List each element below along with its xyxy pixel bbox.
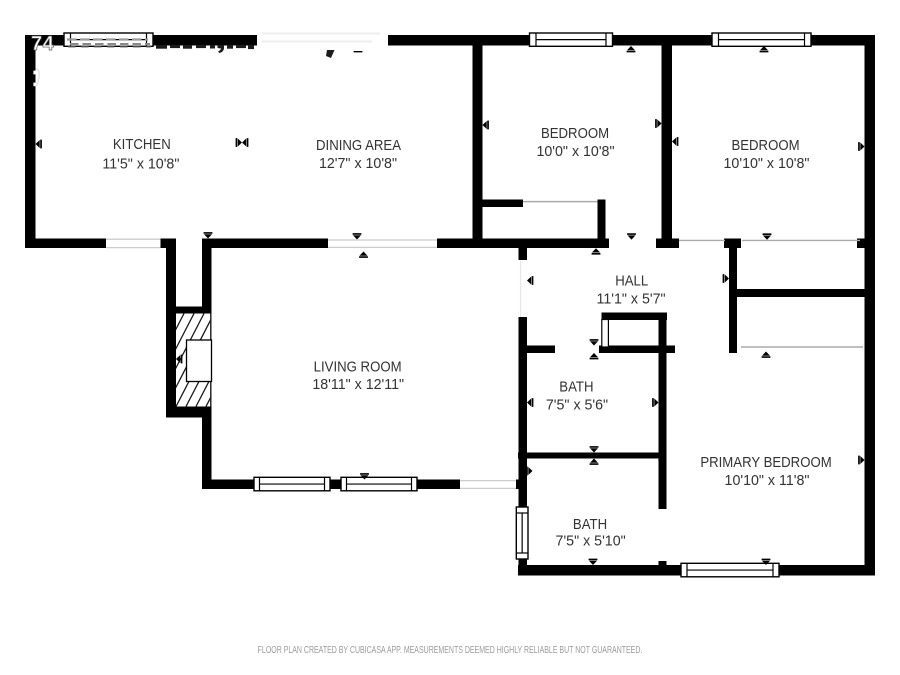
svg-text:KITCHEN: KITCHEN	[113, 135, 171, 152]
svg-text:10'10" x 11'8": 10'10" x 11'8"	[725, 473, 810, 489]
svg-text:74: 74	[31, 33, 55, 55]
svg-text:BATH: BATH	[559, 378, 593, 395]
svg-text:HALL: HALL	[615, 272, 648, 289]
svg-text:BATH: BATH	[573, 515, 607, 532]
svg-text:11'1" x 5'7": 11'1" x 5'7"	[596, 291, 665, 307]
svg-text:11'5" x 10'8": 11'5" x 10'8"	[102, 156, 179, 172]
svg-text:10'10" x 10'8": 10'10" x 10'8"	[724, 156, 810, 172]
svg-text:18'11" x 12'11": 18'11" x 12'11"	[312, 377, 404, 393]
svg-text:12'7" x 10'8": 12'7" x 10'8"	[319, 156, 397, 172]
svg-text:BEDROOM: BEDROOM	[541, 124, 609, 141]
svg-text:DINING AREA: DINING AREA	[316, 136, 402, 153]
svg-text:PRIMARY BEDROOM: PRIMARY BEDROOM	[700, 453, 831, 470]
svg-text:FLOOR PLAN CREATED BY CUBICASA: FLOOR PLAN CREATED BY CUBICASA APP. MEAS…	[258, 644, 643, 656]
svg-text:LIVING ROOM: LIVING ROOM	[314, 358, 402, 375]
svg-text:7'5" x 5'6": 7'5" x 5'6"	[546, 397, 608, 413]
svg-text:7'5" x 5'10": 7'5" x 5'10"	[556, 533, 626, 549]
svg-text:BEDROOM: BEDROOM	[731, 136, 799, 153]
svg-text:10'0" x 10'8": 10'0" x 10'8"	[536, 144, 614, 160]
